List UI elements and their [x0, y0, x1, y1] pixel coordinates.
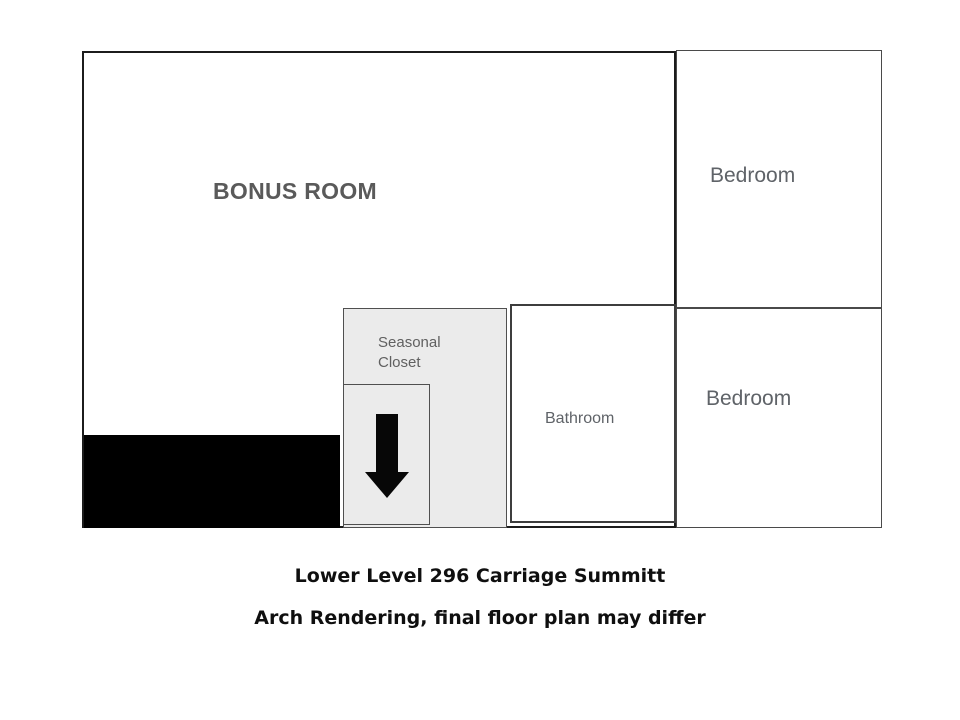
stair-block-filled [84, 435, 340, 528]
floor-plan-page: BONUS ROOM Bedroom Bedroom Bathroom Seas… [0, 0, 960, 720]
plan-disclaimer: Arch Rendering, final floor plan may dif… [0, 607, 960, 629]
bonus-room-label: BONUS ROOM [213, 178, 377, 205]
bedroom-middle-outline [676, 308, 882, 528]
arrow-head [365, 472, 409, 498]
seasonal-closet-label: Seasonal Closet [378, 333, 464, 372]
bedroom-top-label: Bedroom [710, 164, 795, 188]
bathroom-label: Bathroom [545, 410, 614, 428]
stairs-down-arrow-icon [365, 414, 409, 498]
bedroom-middle-label: Bedroom [706, 387, 791, 411]
arrow-shaft [376, 414, 398, 472]
plan-title: Lower Level 296 Carriage Summitt [0, 565, 960, 587]
